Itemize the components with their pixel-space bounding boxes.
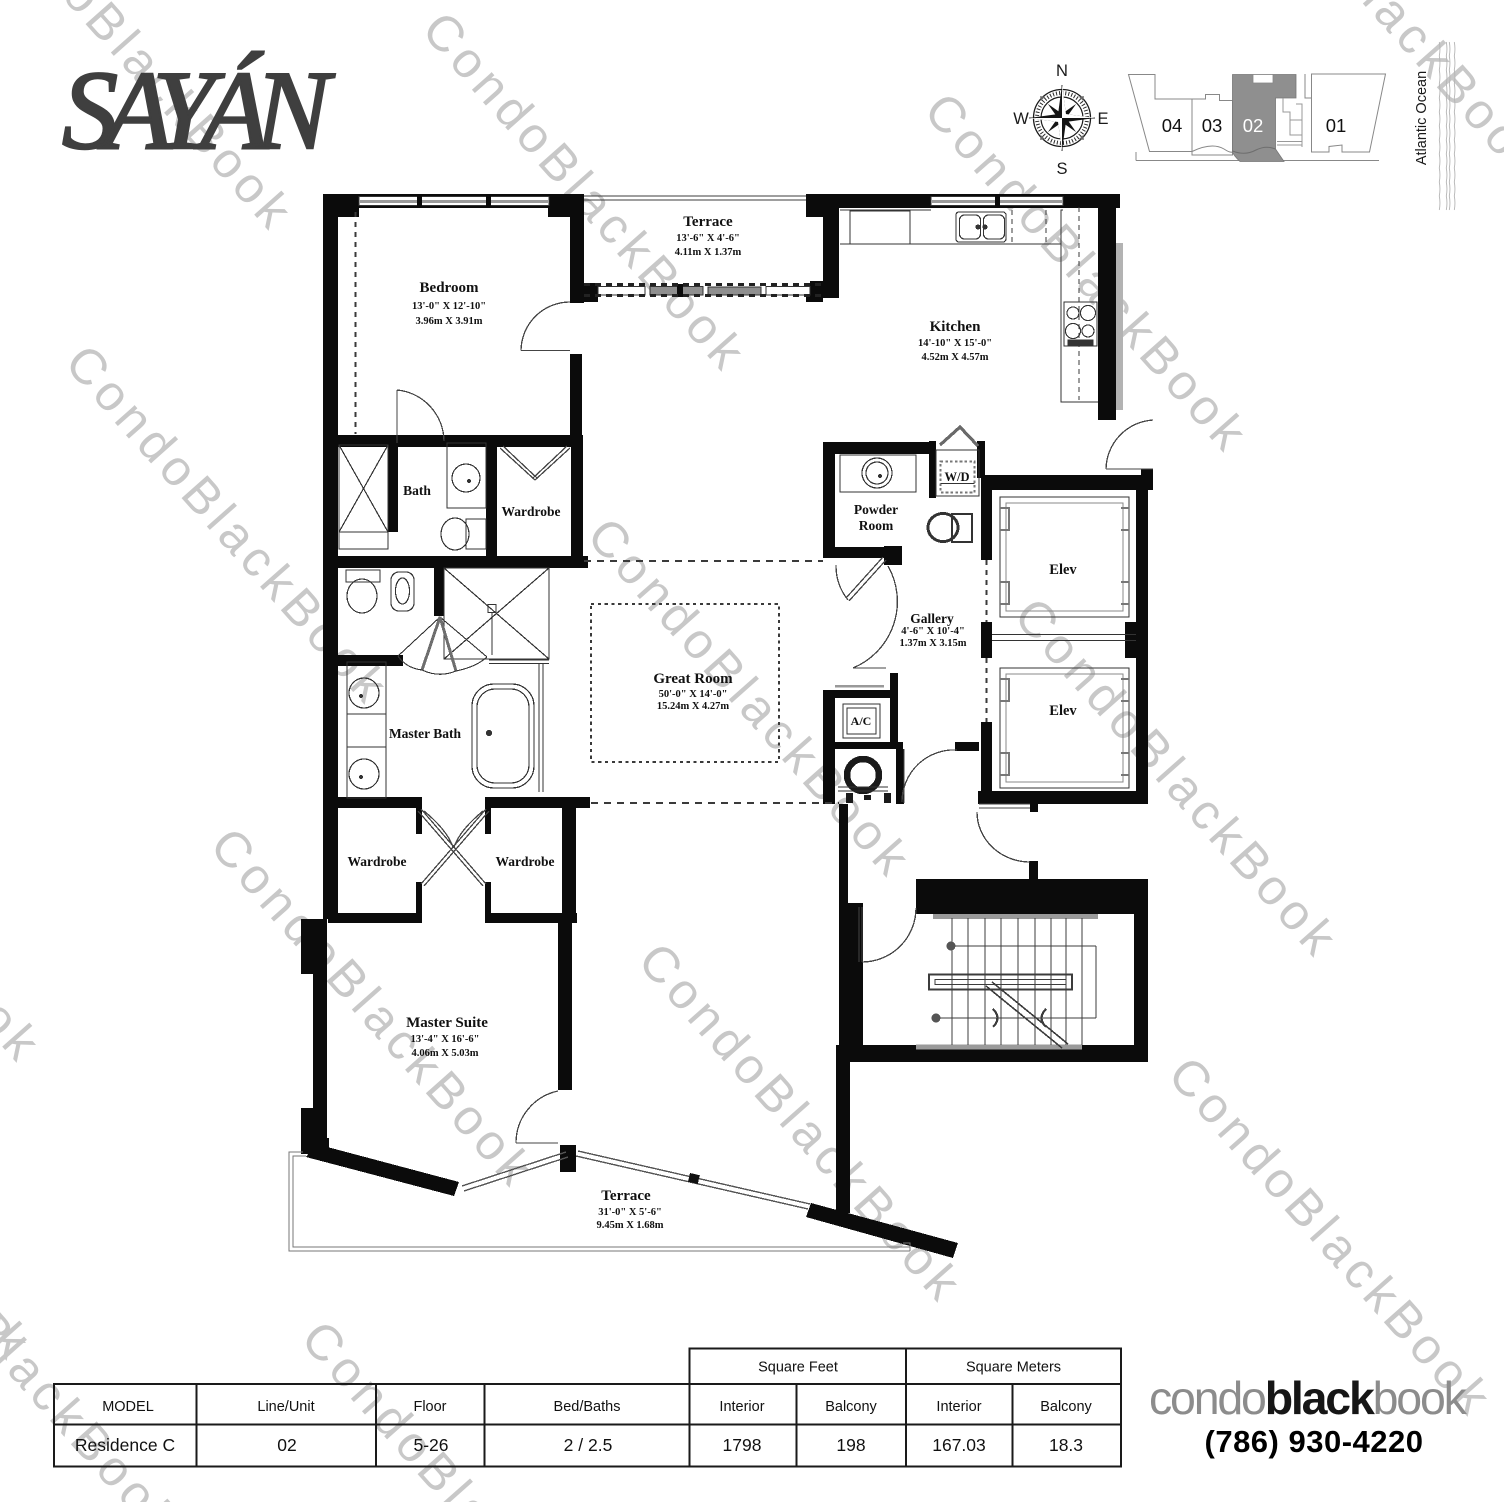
svg-text:31'-0" X 5'-6": 31'-0" X 5'-6" (598, 1207, 662, 1218)
svg-text:04: 04 (1162, 115, 1183, 136)
svg-text:N: N (1056, 62, 1068, 80)
svg-text:4.06m X 5.03m: 4.06m X 5.03m (411, 1048, 478, 1059)
svg-text:198: 198 (836, 1435, 865, 1455)
svg-text:Bed/Baths: Bed/Baths (554, 1399, 621, 1415)
svg-text:01: 01 (1326, 115, 1347, 136)
svg-text:Balcony: Balcony (1040, 1399, 1092, 1415)
svg-text:167.03: 167.03 (932, 1435, 986, 1455)
svg-text:Terrace: Terrace (683, 214, 733, 230)
svg-text:Interior: Interior (719, 1399, 764, 1415)
svg-text:Wardrobe: Wardrobe (347, 854, 406, 869)
svg-text:Atlantic Ocean: Atlantic Ocean (1414, 71, 1430, 165)
svg-text:Great Room: Great Room (653, 671, 733, 687)
svg-text:(786) 930-4220: (786) 930-4220 (1205, 1424, 1424, 1459)
svg-text:4.11m X 1.37m: 4.11m X 1.37m (675, 247, 742, 258)
svg-text:Master Bath: Master Bath (389, 726, 462, 741)
svg-text:Square Meters: Square Meters (966, 1360, 1061, 1376)
svg-text:MODEL: MODEL (102, 1399, 154, 1415)
svg-text:18.3: 18.3 (1049, 1435, 1083, 1455)
svg-text:Bath: Bath (403, 483, 431, 498)
svg-text:13'-0" X 12'-10": 13'-0" X 12'-10" (412, 301, 486, 312)
svg-text:15.24m X 4.27m: 15.24m X 4.27m (657, 701, 730, 712)
svg-text:SAYÁN: SAYÁN (62, 49, 335, 173)
svg-text:13'-6" X 4'-6": 13'-6" X 4'-6" (676, 233, 740, 244)
svg-text:2 / 2.5: 2 / 2.5 (564, 1435, 613, 1455)
svg-text:E: E (1097, 110, 1108, 128)
svg-text:Interior: Interior (936, 1399, 981, 1415)
svg-text:13'-4" X 16'-6": 13'-4" X 16'-6" (411, 1034, 480, 1045)
svg-text:14'-10" X 15'-0": 14'-10" X 15'-0" (918, 338, 992, 349)
svg-text:Bedroom: Bedroom (420, 280, 479, 296)
svg-text:S: S (1056, 160, 1067, 178)
svg-text:Residence C: Residence C (75, 1435, 175, 1455)
svg-text:Powder: Powder (854, 502, 898, 517)
svg-text:Elev: Elev (1049, 703, 1077, 719)
svg-text:9.45m X 1.68m: 9.45m X 1.68m (596, 1220, 663, 1231)
svg-text:W/D: W/D (945, 470, 970, 484)
svg-text:Wardrobe: Wardrobe (501, 504, 560, 519)
svg-text:Balcony: Balcony (825, 1399, 877, 1415)
svg-text:03: 03 (1202, 115, 1223, 136)
svg-text:A/C: A/C (851, 714, 872, 728)
svg-text:Room: Room (859, 518, 894, 533)
svg-text:Master Suite: Master Suite (406, 1015, 488, 1031)
svg-text:4.52m X 4.57m: 4.52m X 4.57m (921, 352, 988, 363)
svg-text:Kitchen: Kitchen (930, 319, 981, 335)
svg-text:Line/Unit: Line/Unit (257, 1399, 314, 1415)
svg-text:condoblackbook: condoblackbook (1149, 1372, 1468, 1424)
svg-text:Square Feet: Square Feet (758, 1360, 838, 1376)
svg-text:Wardrobe: Wardrobe (495, 854, 554, 869)
svg-text:W: W (1013, 110, 1029, 128)
svg-text:Terrace: Terrace (601, 1188, 651, 1204)
svg-text:1.37m X 3.15m: 1.37m X 3.15m (899, 638, 966, 649)
svg-text:Gallery: Gallery (910, 611, 954, 626)
svg-text:02: 02 (277, 1435, 296, 1455)
svg-text:5-26: 5-26 (413, 1435, 448, 1455)
svg-text:3.96m X 3.91m: 3.96m X 3.91m (415, 316, 482, 327)
svg-text:02: 02 (1243, 115, 1264, 136)
svg-text:50'-0" X 14'-0": 50'-0" X 14'-0" (659, 689, 728, 700)
svg-text:Elev: Elev (1049, 562, 1077, 578)
svg-text:Floor: Floor (413, 1399, 446, 1415)
svg-text:4'-6" X 10'-4": 4'-6" X 10'-4" (901, 626, 965, 637)
svg-text:1798: 1798 (723, 1435, 762, 1455)
